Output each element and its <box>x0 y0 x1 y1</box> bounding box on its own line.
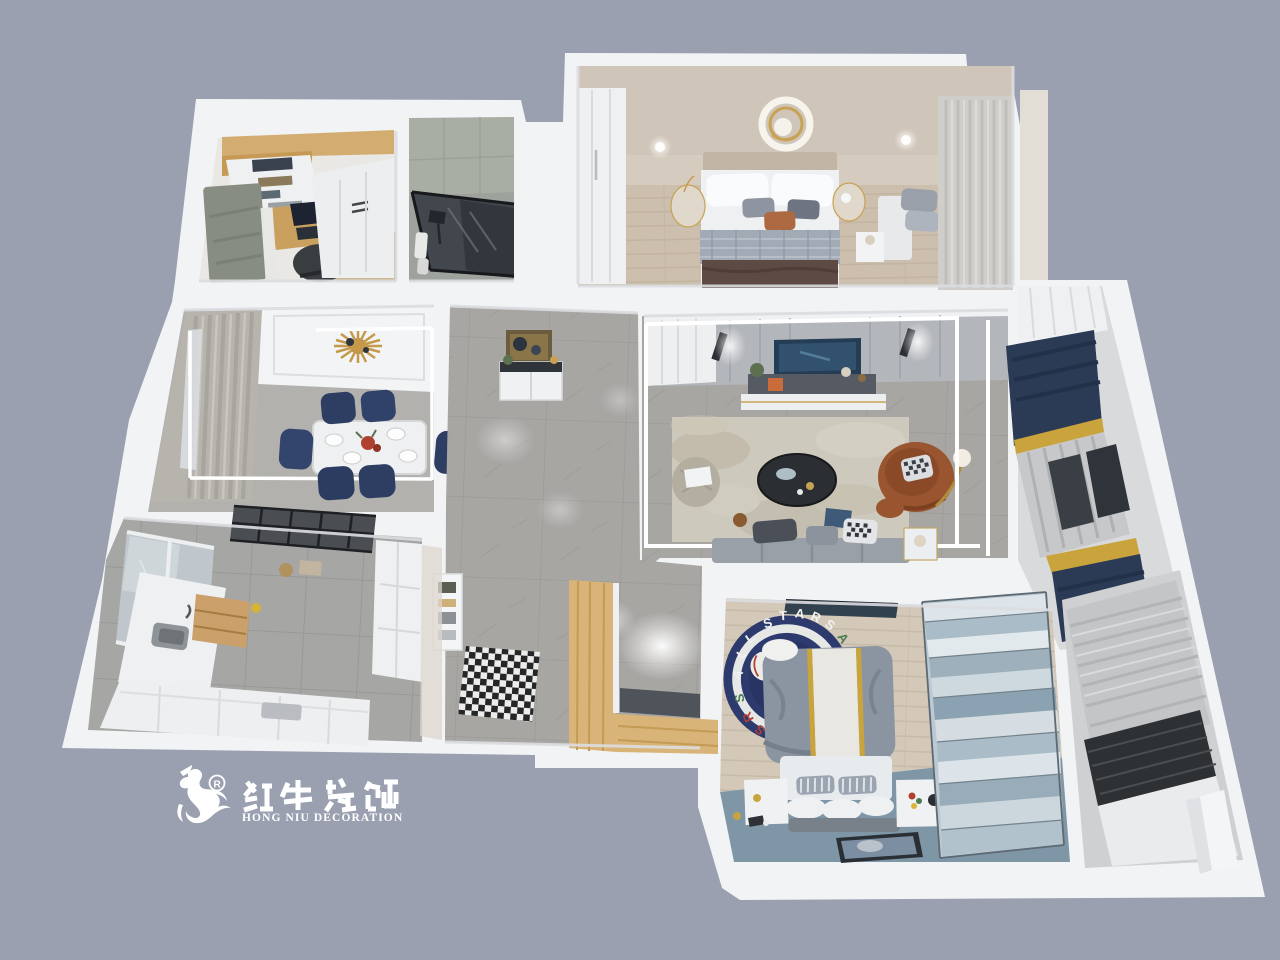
svg-text:T: T <box>779 608 788 624</box>
svg-text:R: R <box>214 780 222 791</box>
svg-text:HONG NIU DECORATION: HONG NIU DECORATION <box>242 812 403 824</box>
